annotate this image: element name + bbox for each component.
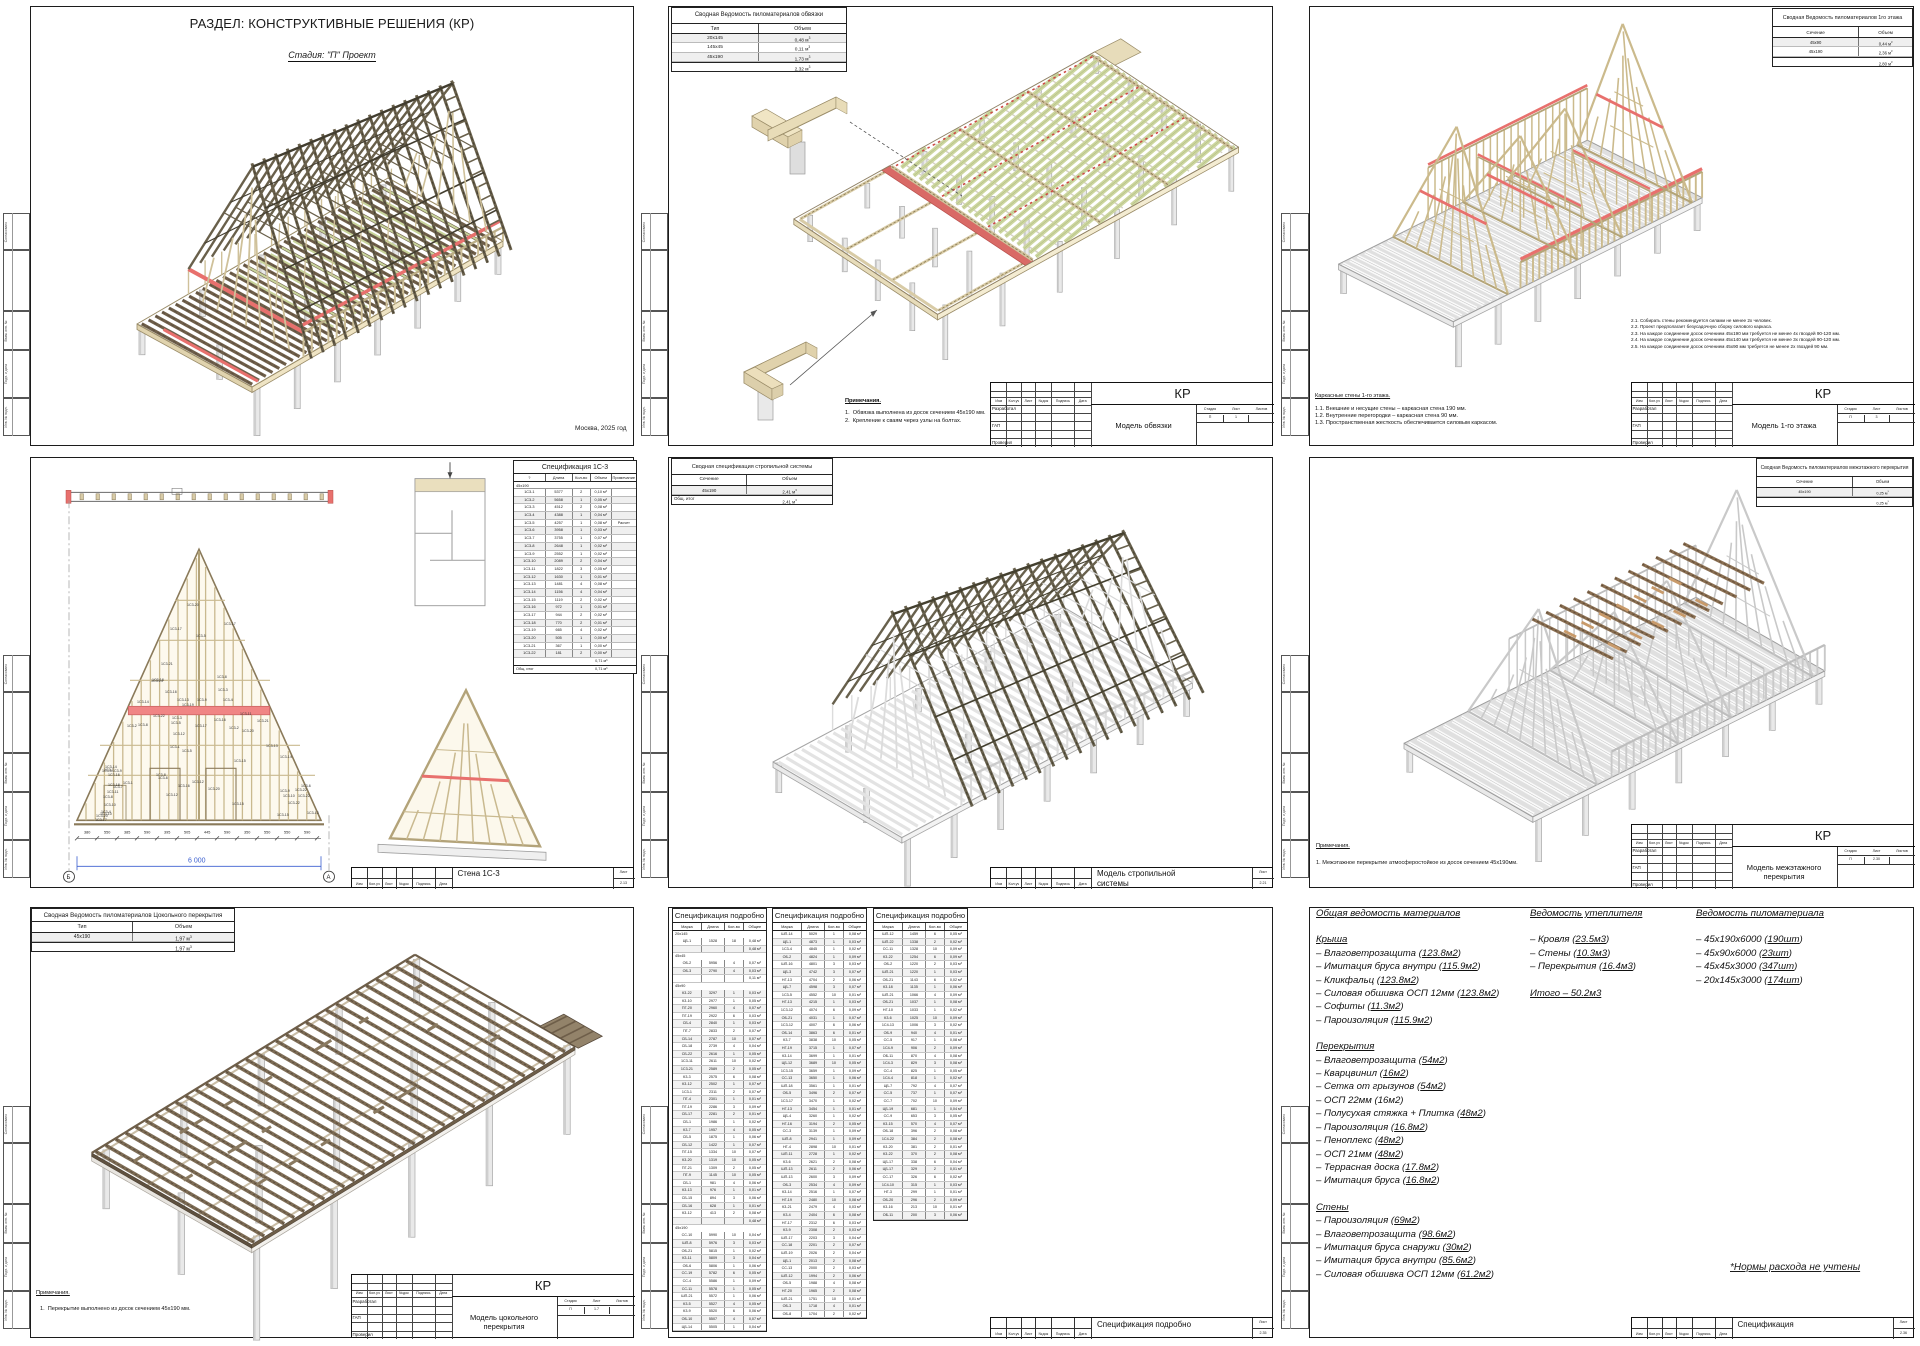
svg-text:1С3-20: 1С3-20 — [187, 603, 199, 607]
svg-text:1С3-4: 1С3-4 — [223, 698, 233, 702]
svg-text:1С3-9: 1С3-9 — [197, 698, 207, 702]
svg-text:1С3-11: 1С3-11 — [240, 712, 252, 716]
svg-text:1С3-5: 1С3-5 — [171, 721, 181, 725]
svg-text:1С3-21: 1С3-21 — [161, 662, 173, 666]
svg-text:1С3-13: 1С3-13 — [177, 698, 189, 702]
svg-text:1С3-22: 1С3-22 — [295, 788, 307, 792]
svg-text:Б: Б — [67, 875, 71, 881]
svg-text:1С3-3: 1С3-3 — [218, 688, 228, 692]
svg-text:1С3-19: 1С3-19 — [182, 703, 194, 707]
svg-text:1С3-22: 1С3-22 — [288, 801, 300, 805]
svg-text:1С3-8: 1С3-8 — [103, 795, 113, 799]
svg-text:1С3-14: 1С3-14 — [280, 755, 292, 759]
svg-text:1С3-15: 1С3-15 — [234, 759, 246, 763]
svg-text:1С3-14: 1С3-14 — [137, 700, 149, 704]
svg-text:1С3-6: 1С3-6 — [301, 784, 311, 788]
svg-text:590: 590 — [304, 830, 310, 834]
svg-text:1С3-1: 1С3-1 — [123, 781, 133, 785]
svg-text:1С3-16: 1С3-16 — [178, 784, 190, 788]
svg-text:550: 550 — [104, 830, 110, 834]
svg-text:590: 590 — [144, 830, 150, 834]
svg-text:1С3-20: 1С3-20 — [242, 729, 254, 733]
svg-text:1С3-2: 1С3-2 — [127, 724, 137, 728]
svg-text:1С3-2: 1С3-2 — [229, 726, 239, 730]
svg-text:1С3-17: 1С3-17 — [170, 627, 182, 631]
svg-text:1С3-22: 1С3-22 — [153, 714, 165, 718]
svg-text:1С3-16: 1С3-16 — [165, 690, 177, 694]
svg-text:395: 395 — [164, 830, 170, 834]
svg-text:1С3-10: 1С3-10 — [104, 803, 116, 807]
svg-text:1С3-17: 1С3-17 — [224, 622, 236, 626]
svg-text:505: 505 — [184, 830, 190, 834]
svg-text:1С3-15: 1С3-15 — [232, 802, 244, 806]
svg-text:1С3-18: 1С3-18 — [108, 783, 120, 787]
svg-text:1С3-17: 1С3-17 — [95, 818, 107, 822]
svg-text:1С3-9: 1С3-9 — [112, 769, 122, 773]
svg-text:6 000: 6 000 — [188, 857, 206, 864]
svg-text:380: 380 — [84, 830, 90, 834]
svg-text:1С3-10: 1С3-10 — [283, 794, 295, 798]
svg-text:1С3-18: 1С3-18 — [152, 678, 164, 682]
svg-text:590: 590 — [224, 830, 230, 834]
svg-text:1С3-16: 1С3-16 — [108, 773, 120, 777]
svg-text:1С3-22: 1С3-22 — [298, 794, 310, 798]
svg-text:1С3-5: 1С3-5 — [182, 749, 192, 753]
svg-text:А: А — [327, 875, 331, 881]
svg-text:1С3-12: 1С3-12 — [166, 793, 178, 797]
svg-text:550: 550 — [284, 830, 290, 834]
svg-text:1С3-16: 1С3-16 — [214, 718, 226, 722]
svg-text:1С3-8: 1С3-8 — [138, 723, 148, 727]
svg-text:1С3-15: 1С3-15 — [277, 813, 289, 817]
svg-text:1С3-8: 1С3-8 — [156, 773, 166, 777]
svg-text:1С3-3: 1С3-3 — [172, 716, 182, 720]
svg-text:1С3-13: 1С3-13 — [266, 744, 278, 748]
svg-text:550: 550 — [264, 830, 270, 834]
svg-text:1С3-13: 1С3-13 — [307, 811, 319, 815]
svg-text:350: 350 — [244, 830, 250, 834]
svg-text:1С3-20: 1С3-20 — [208, 787, 220, 791]
svg-text:1С3-1: 1С3-1 — [170, 745, 180, 749]
svg-text:385: 385 — [124, 830, 130, 834]
svg-text:1С3-8: 1С3-8 — [217, 675, 227, 679]
svg-text:1С3-12: 1С3-12 — [192, 780, 204, 784]
svg-text:1С3-17: 1С3-17 — [195, 724, 207, 728]
svg-text:445: 445 — [204, 830, 210, 834]
svg-text:1С3-12: 1С3-12 — [173, 732, 185, 736]
svg-text:1С3-5: 1С3-5 — [102, 769, 112, 773]
svg-text:1С3-11: 1С3-11 — [107, 790, 119, 794]
svg-text:1С3-21: 1С3-21 — [257, 719, 269, 723]
svg-text:1С3-5: 1С3-5 — [196, 634, 206, 638]
svg-text:1С3-9: 1С3-9 — [280, 789, 290, 793]
